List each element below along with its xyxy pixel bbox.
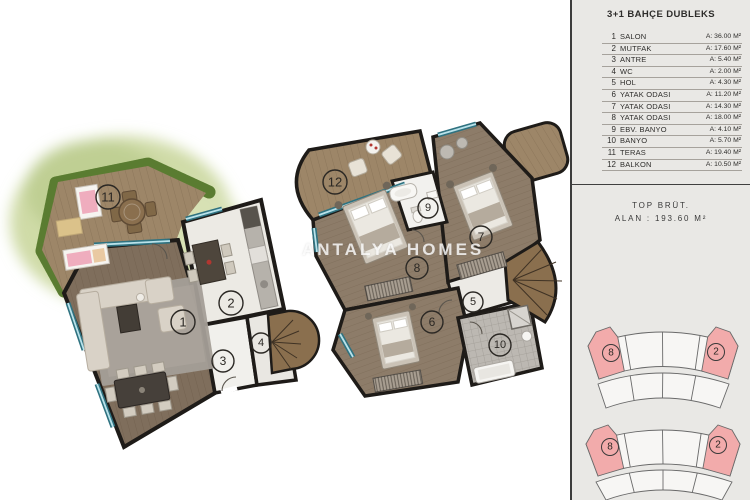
legend-row: 6YATAK ODASIA: 11.20 M²	[602, 90, 742, 102]
legend-row: 3ANTREA: 5.40 M²	[602, 55, 742, 67]
label-mutfak: 2	[227, 296, 234, 311]
label-wc: 4	[258, 337, 264, 349]
floorplan-page: 11 1 2 3 4 12 8 9 7 5 6 10 ANTALYA HOMES…	[0, 0, 750, 500]
label-salon: 1	[179, 315, 186, 330]
site-unit-bottom-left: 8	[607, 442, 613, 453]
legend-row: 8YATAK ODASIA: 18.00 M²	[602, 113, 742, 125]
legend-row: 7YATAK ODASIA: 14.30 M²	[602, 102, 742, 114]
legend-row: 9EBV. BANYOA: 4.10 M²	[602, 125, 742, 137]
label-banyo: 10	[494, 339, 506, 351]
legend-row: 11TERASA: 19.40 M²	[602, 148, 742, 160]
ground-floor-plan	[10, 136, 319, 447]
watermark: ANTALYA HOMES	[302, 240, 484, 260]
site-unit-bottom-right: 2	[715, 440, 721, 451]
legend-row: 1SALONA: 36.00 M²	[602, 32, 742, 44]
gross-area-line1: TOP BRÜT.	[572, 199, 750, 212]
label-yatak6: 6	[429, 315, 436, 329]
plan-title: 3+1 BAHÇE DUBLEKS	[572, 9, 750, 20]
label-hol: 5	[470, 296, 476, 308]
panel-divider	[570, 184, 750, 185]
spiral-stair-ground	[268, 311, 319, 373]
label-teras: 11	[101, 190, 115, 205]
site-unit-top-left: 8	[608, 348, 614, 359]
label-yatak8: 8	[414, 261, 421, 275]
gross-area-summary: TOP BRÜT. ALAN : 193.60 M²	[572, 199, 750, 225]
room-legend-table: 1SALONA: 36.00 M² 2MUTFAKA: 17.60 M² 3AN…	[602, 32, 742, 171]
gross-area-line2: ALAN : 193.60 M²	[572, 212, 750, 225]
legend-row: 2MUTFAKA: 17.60 M²	[602, 44, 742, 56]
label-ebv-banyo: 9	[425, 202, 431, 214]
site-unit-top-right: 2	[713, 347, 719, 358]
site-key-plan: 8 2 8 2	[572, 316, 750, 500]
info-panel: 3+1 BAHÇE DUBLEKS 1SALONA: 36.00 M² 2MUT…	[570, 0, 750, 500]
site-block-top	[588, 327, 738, 408]
pouf-room7	[440, 145, 454, 159]
label-balkon: 12	[328, 175, 342, 190]
legend-row: 4WCA: 2.00 M²	[602, 67, 742, 79]
label-antre: 3	[220, 354, 227, 368]
legend-row: 12BALKONA: 10.50 M²	[602, 160, 742, 172]
legend-row: 10BANYOA: 5.70 M²	[602, 136, 742, 148]
legend-row: 5HOLA: 4.30 M²	[602, 78, 742, 90]
pouf-room7-small	[457, 138, 468, 149]
